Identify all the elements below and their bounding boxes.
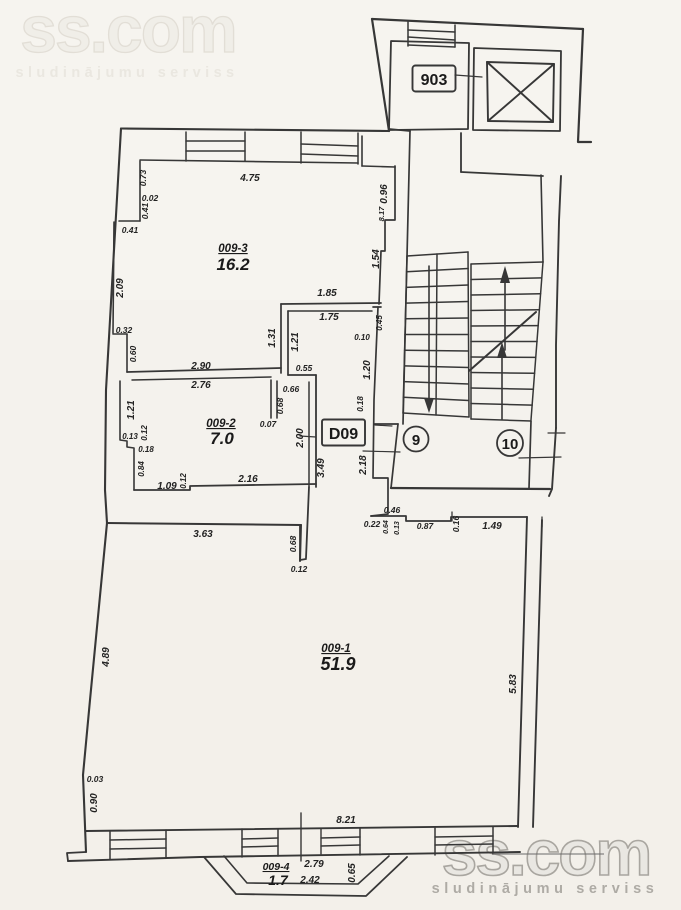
svg-text:0.84: 0.84 xyxy=(137,461,146,477)
svg-text:51.9: 51.9 xyxy=(320,654,355,674)
svg-text:2.09: 2.09 xyxy=(115,278,126,299)
svg-text:1.54: 1.54 xyxy=(371,249,382,269)
svg-text:3.49: 3.49 xyxy=(316,458,327,478)
svg-text:1.49: 1.49 xyxy=(482,521,502,532)
svg-text:0.18: 0.18 xyxy=(138,445,154,454)
svg-text:0.90: 0.90 xyxy=(89,793,100,813)
svg-text:0.10: 0.10 xyxy=(354,333,370,342)
svg-text:8.21: 8.21 xyxy=(336,815,356,826)
svg-text:0.12: 0.12 xyxy=(179,473,188,489)
svg-text:1.09: 1.09 xyxy=(157,481,177,492)
svg-text:0.41: 0.41 xyxy=(122,225,139,235)
svg-text:0.03: 0.03 xyxy=(87,774,104,784)
svg-text:0.60: 0.60 xyxy=(128,345,138,362)
svg-text:1.85: 1.85 xyxy=(317,288,337,299)
svg-text:4.89: 4.89 xyxy=(101,647,112,668)
svg-text:0.45: 0.45 xyxy=(375,315,384,331)
svg-text:1.20: 1.20 xyxy=(362,360,373,380)
svg-text:10: 10 xyxy=(502,436,519,453)
svg-text:0.22: 0.22 xyxy=(364,519,381,529)
svg-text:0.41: 0.41 xyxy=(140,202,150,219)
svg-text:2.16: 2.16 xyxy=(237,474,258,485)
svg-text:2.79: 2.79 xyxy=(303,859,324,870)
svg-text:0.12: 0.12 xyxy=(291,564,308,574)
svg-text:0.73: 0.73 xyxy=(138,169,148,186)
svg-text:0.16: 0.16 xyxy=(451,515,461,532)
svg-text:sludinājumu serviss: sludinājumu serviss xyxy=(15,65,238,81)
svg-text:5.83: 5.83 xyxy=(508,674,519,694)
svg-text:1.31: 1.31 xyxy=(267,328,278,348)
svg-text:2.00: 2.00 xyxy=(295,428,306,449)
svg-text:0.13: 0.13 xyxy=(122,432,138,441)
svg-text:0.13: 0.13 xyxy=(394,521,401,535)
svg-text:1.75: 1.75 xyxy=(319,312,339,323)
svg-text:0.55: 0.55 xyxy=(296,363,313,373)
svg-text:2.90: 2.90 xyxy=(190,361,211,372)
svg-text:0.87: 0.87 xyxy=(417,521,435,531)
svg-text:009-3: 009-3 xyxy=(218,243,248,255)
svg-text:D09: D09 xyxy=(329,426,358,443)
svg-text:3.63: 3.63 xyxy=(193,529,213,540)
svg-text:0.07: 0.07 xyxy=(260,419,278,429)
svg-text:0.12: 0.12 xyxy=(140,425,149,441)
svg-text:0.96: 0.96 xyxy=(379,184,390,204)
svg-text:0.02: 0.02 xyxy=(142,193,159,203)
svg-text:4.75: 4.75 xyxy=(239,173,260,184)
svg-text:0.64: 0.64 xyxy=(383,520,390,534)
svg-text:2.76: 2.76 xyxy=(190,380,211,391)
svg-text:16.2: 16.2 xyxy=(216,255,250,274)
svg-text:9: 9 xyxy=(412,432,420,449)
svg-text:903: 903 xyxy=(421,72,448,89)
svg-text:2.18: 2.18 xyxy=(358,455,369,476)
svg-text:8.17: 8.17 xyxy=(377,206,386,221)
svg-text:1.7: 1.7 xyxy=(268,872,289,888)
svg-text:0.18: 0.18 xyxy=(356,396,365,412)
svg-text:0.32: 0.32 xyxy=(116,325,133,335)
svg-text:0.66: 0.66 xyxy=(283,384,300,394)
svg-text:1.21: 1.21 xyxy=(126,400,137,420)
svg-text:ss.com: ss.com xyxy=(20,0,235,66)
svg-text:0.68: 0.68 xyxy=(275,397,285,414)
svg-text:0.65: 0.65 xyxy=(347,863,358,883)
svg-text:0.68: 0.68 xyxy=(288,535,298,552)
svg-text:0.46: 0.46 xyxy=(384,505,401,515)
svg-text:2.42: 2.42 xyxy=(299,875,320,886)
svg-text:1.21: 1.21 xyxy=(290,332,301,352)
svg-text:sludinājumu serviss: sludinājumu serviss xyxy=(432,881,659,897)
svg-text:7.0: 7.0 xyxy=(210,429,234,448)
